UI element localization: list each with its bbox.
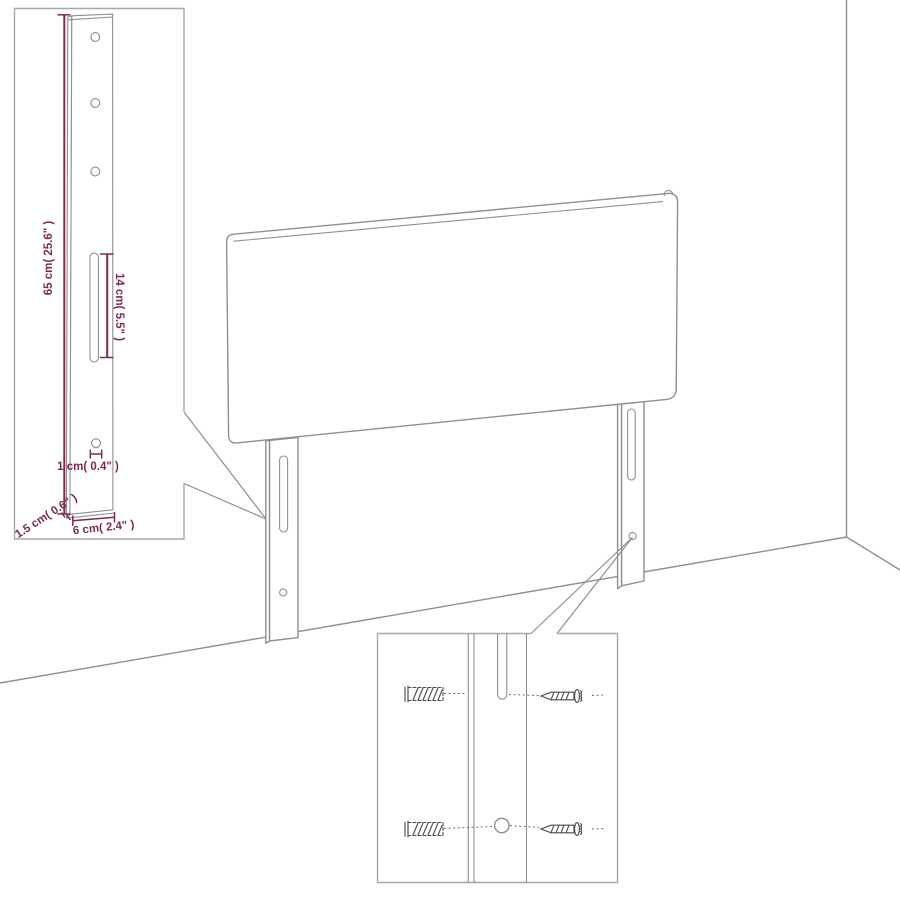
width-dimension-line — [73, 517, 115, 521]
callout-leaders — [184, 412, 632, 634]
hardware-detail-panel — [378, 634, 618, 883]
headboard-leg-right — [618, 400, 644, 589]
leg-slot — [628, 409, 636, 480]
hole-dimension-label: 1 cm( 0.4" ) — [57, 461, 119, 473]
dashed-leader — [592, 829, 603, 830]
height-dimension-label: 65 cm( 25.6" ) — [43, 221, 55, 296]
callout-leader-line — [184, 484, 266, 520]
leg-slot — [280, 456, 288, 532]
headboard-outline — [227, 193, 678, 443]
wall-plug-icon — [405, 686, 443, 702]
dashed-leader — [510, 826, 539, 828]
headboard-dimension-diagram: 65 cm( 25.6" ) 14 cm( 5.5" ) 1 cm( 0.4" … — [0, 0, 900, 900]
screw-icon — [541, 690, 582, 703]
headboard-leg-left — [266, 437, 298, 643]
floor-line-right — [847, 537, 900, 570]
width-dimension: 6 cm( 2.4" ) — [72, 512, 135, 537]
slot-dimension-label: 14 cm( 5.5" ) — [113, 273, 125, 341]
leg-detail-panel: 65 cm( 25.6" ) 14 cm( 5.5" ) 1 cm( 0.4" … — [13, 9, 184, 541]
hardware-row-lower — [405, 821, 603, 837]
headboard-panel — [227, 190, 678, 443]
hardware-row-upper — [405, 686, 603, 702]
detail-leg-edges — [468, 634, 526, 883]
detail-leg-slot — [90, 253, 98, 362]
wall-plug-icon — [405, 821, 443, 837]
dashed-leader — [509, 695, 539, 696]
thickness-dimension: 1.5 cm( 0.6" ) — [13, 492, 79, 541]
dashed-leader — [592, 695, 603, 696]
width-dimension-label: 6 cm( 2.4" ) — [72, 519, 135, 537]
screw-icon — [541, 823, 582, 836]
floor-line-left — [0, 537, 847, 683]
detail-slot — [498, 634, 507, 700]
detail-screw-hole — [495, 818, 509, 832]
thickness-dimension-label: 1.5 cm( 0.6" ) — [13, 492, 79, 541]
